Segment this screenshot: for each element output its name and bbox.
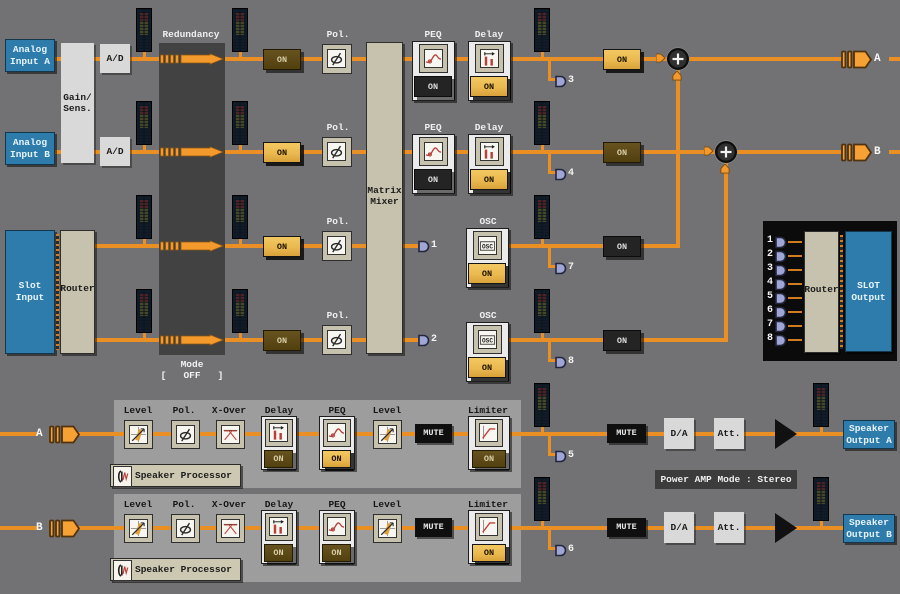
svg-text:OSC: OSC (482, 337, 493, 344)
svg-text:OSC: OSC (482, 243, 493, 250)
